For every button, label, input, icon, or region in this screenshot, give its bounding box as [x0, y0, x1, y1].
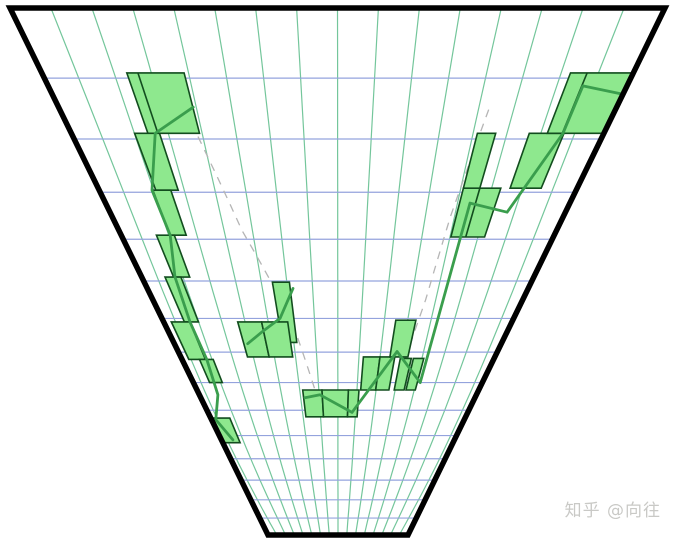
watermark: 知乎 @向往 [565, 496, 661, 521]
perspective-candlestick-chart [0, 0, 675, 543]
vertical-gridline [338, 8, 339, 535]
perspective-chart-stage: 知乎 @向往 [0, 0, 675, 543]
